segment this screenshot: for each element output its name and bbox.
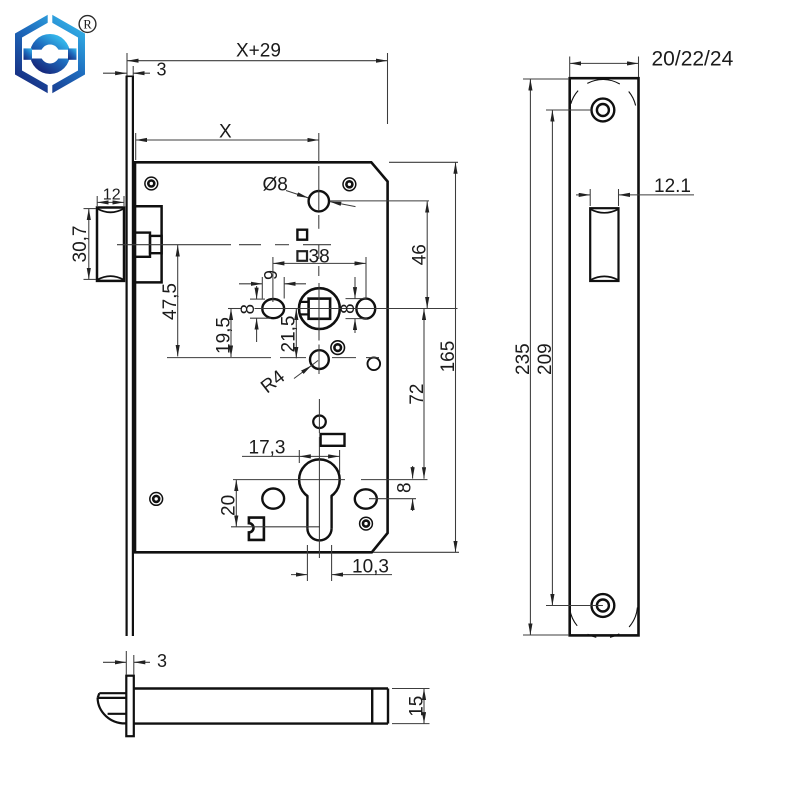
svg-text:R4: R4 (257, 366, 289, 398)
svg-text:30,7: 30,7 (70, 226, 91, 263)
svg-text:8: 8 (395, 482, 416, 493)
svg-text:12.1: 12.1 (654, 176, 691, 197)
svg-text:12: 12 (103, 187, 121, 204)
svg-text:209: 209 (535, 343, 556, 375)
svg-text:165: 165 (438, 341, 459, 373)
svg-text:235: 235 (513, 343, 534, 375)
svg-text:72: 72 (407, 384, 428, 405)
svg-text:17,3: 17,3 (249, 438, 286, 459)
svg-text:Ø8: Ø8 (263, 175, 288, 196)
svg-text:9: 9 (261, 270, 281, 280)
svg-text:8: 8 (338, 303, 359, 314)
svg-text:15: 15 (407, 696, 428, 717)
svg-text:21,5: 21,5 (279, 316, 300, 353)
svg-text:X: X (219, 122, 232, 143)
svg-text:3: 3 (157, 60, 167, 80)
svg-text:8: 8 (238, 304, 259, 315)
svg-text:20: 20 (219, 495, 240, 516)
svg-text:R: R (83, 18, 92, 32)
svg-text:20/22/24: 20/22/24 (652, 48, 734, 71)
svg-text:10,3: 10,3 (352, 557, 389, 578)
svg-text:3: 3 (157, 651, 167, 671)
svg-text:38: 38 (309, 247, 330, 268)
svg-text:46: 46 (410, 244, 431, 265)
svg-text:47,5: 47,5 (160, 283, 181, 320)
svg-text:19,5: 19,5 (214, 317, 235, 354)
svg-text:X+29: X+29 (236, 41, 281, 62)
